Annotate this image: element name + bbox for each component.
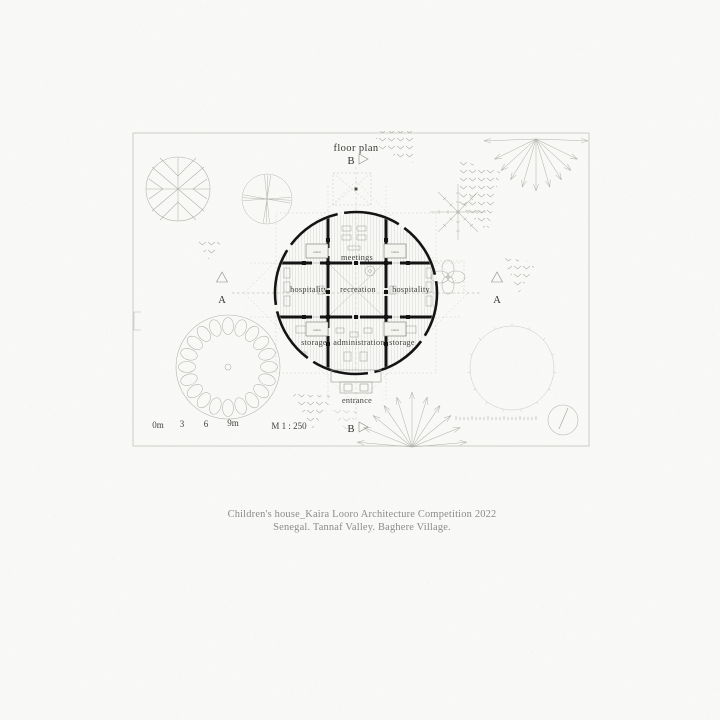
- architectural-floor-plan-sheet: toilets toilets toilets toilets meetings…: [0, 0, 720, 720]
- section-letter-b-bottom: B: [347, 424, 354, 435]
- section-letter-a-left: A: [218, 295, 226, 306]
- service-room-label: toilets: [391, 250, 400, 254]
- service-room-label: toilets: [313, 328, 322, 332]
- service-room-label: toilets: [391, 328, 400, 332]
- scale-tick-1: 3: [180, 419, 185, 429]
- scale-tick-2: 6: [204, 419, 209, 429]
- room-label-entrance: entrance: [342, 396, 372, 405]
- caption-line-2: Senegal. Tannaf Valley. Baghere Village.: [273, 522, 451, 533]
- scale-tick-3: 9m: [227, 418, 239, 428]
- scale-ratio: M 1 : 250: [271, 421, 307, 431]
- section-letter-b-top: B: [347, 156, 354, 167]
- room-label-recreation: recreation: [340, 285, 376, 294]
- caption-line-1: Children's house_Kaira Looro Architectur…: [228, 509, 497, 520]
- room-label-storage-right: storage: [389, 338, 415, 347]
- plan-title: floor plan: [333, 143, 378, 154]
- section-letter-a-right: A: [493, 295, 501, 306]
- service-room-label: toilets: [313, 250, 322, 254]
- room-label-meetings: meetings: [341, 253, 373, 262]
- room-label-administration: administration: [333, 338, 385, 347]
- room-label-hospitality-right: hospitality: [392, 285, 430, 294]
- room-label-storage-left: storage: [301, 338, 327, 347]
- room-label-hospitality-left: hospitality: [290, 285, 328, 294]
- scale-tick-0: 0m: [152, 420, 164, 430]
